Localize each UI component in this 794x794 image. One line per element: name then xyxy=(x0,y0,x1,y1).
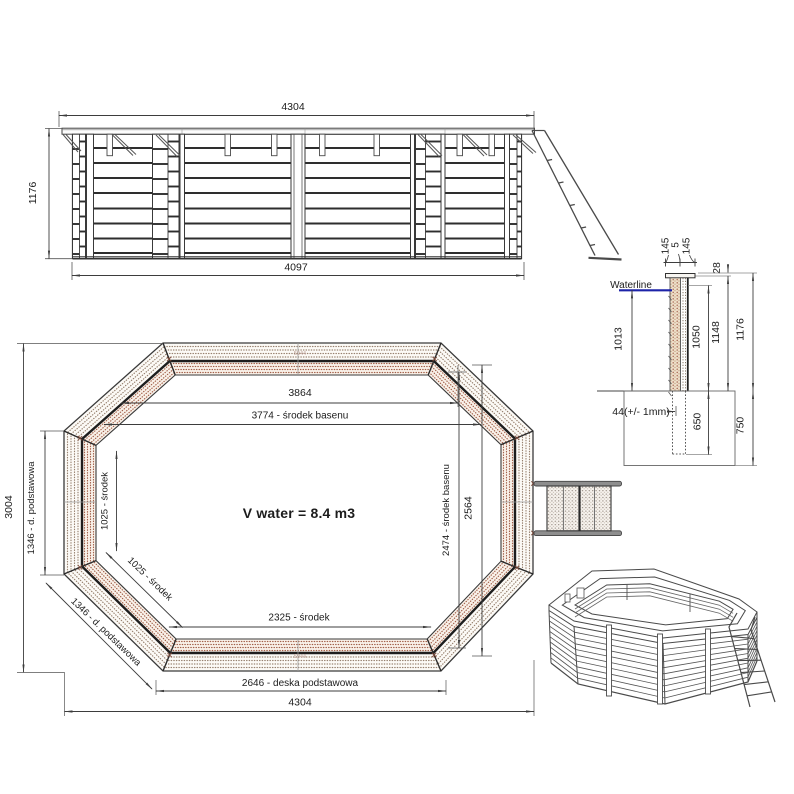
svg-text:2474 - środek basenu: 2474 - środek basenu xyxy=(441,464,452,556)
svg-text:5: 5 xyxy=(671,242,682,248)
svg-text:1176: 1176 xyxy=(27,182,39,205)
svg-text:28: 28 xyxy=(711,262,723,274)
svg-text:1025 - środek: 1025 - środek xyxy=(100,472,111,530)
svg-text:5944: 5944 xyxy=(294,654,306,660)
svg-text:1050: 1050 xyxy=(691,325,703,349)
svg-text:3864: 3864 xyxy=(288,387,312,399)
svg-text:3004: 3004 xyxy=(3,495,15,519)
svg-text:4304: 4304 xyxy=(281,101,305,113)
svg-text:44(+/- 1mm): 44(+/- 1mm) xyxy=(612,406,669,418)
svg-text:1176: 1176 xyxy=(735,318,747,341)
svg-text:3774 - środek basenu: 3774 - środek basenu xyxy=(252,411,349,422)
svg-text:145: 145 xyxy=(682,237,693,254)
svg-text:2325 - środek: 2325 - środek xyxy=(268,613,330,624)
svg-text:4097: 4097 xyxy=(284,262,308,274)
svg-text:1346 - d. podstawowa: 1346 - d. podstawowa xyxy=(26,461,37,555)
svg-text:5944: 5944 xyxy=(294,351,306,357)
svg-text:4304: 4304 xyxy=(288,697,312,709)
svg-text:2564: 2564 xyxy=(463,496,475,520)
svg-text:2646 - deska podstawowa: 2646 - deska podstawowa xyxy=(242,678,359,689)
svg-text:650: 650 xyxy=(692,413,704,431)
svg-text:1148: 1148 xyxy=(710,321,722,344)
svg-text:1013: 1013 xyxy=(613,327,625,351)
svg-text:V water = 8.4 m3: V water = 8.4 m3 xyxy=(243,505,356,521)
svg-text:750: 750 xyxy=(735,417,747,435)
